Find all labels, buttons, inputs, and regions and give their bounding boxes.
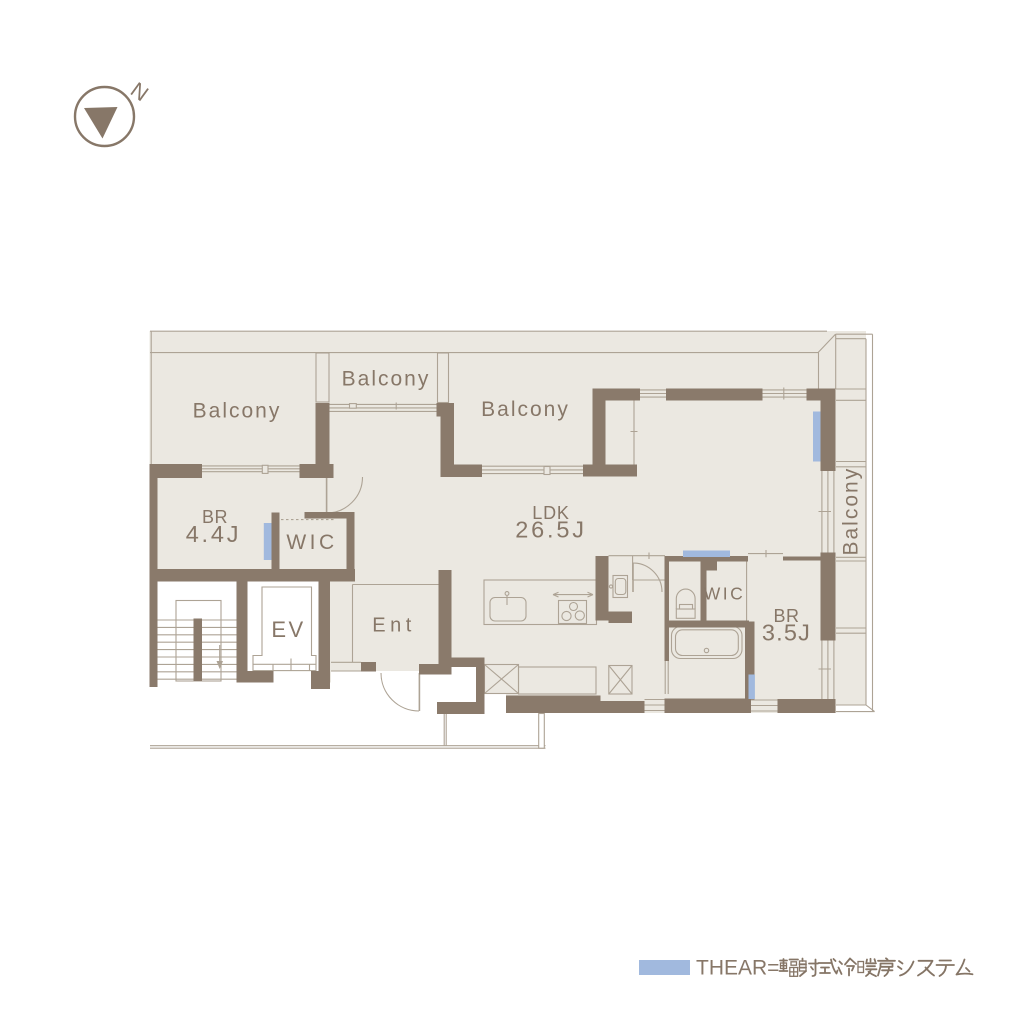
svg-text:Balcony: Balcony <box>342 368 431 391</box>
svg-text:THEAR=: THEAR= <box>696 957 779 980</box>
svg-text:WIC: WIC <box>704 584 746 604</box>
svg-text:Balcony: Balcony <box>840 467 863 556</box>
svg-text:26.5J: 26.5J <box>515 517 587 543</box>
svg-text:3.5J: 3.5J <box>762 620 811 646</box>
svg-text:Balcony: Balcony <box>193 400 282 423</box>
svg-text:Ent: Ent <box>372 615 416 637</box>
svg-text:Balcony: Balcony <box>481 398 570 421</box>
svg-text:EV: EV <box>271 617 305 642</box>
svg-text:WIC: WIC <box>286 531 337 554</box>
svg-text:4.4J: 4.4J <box>186 521 242 547</box>
